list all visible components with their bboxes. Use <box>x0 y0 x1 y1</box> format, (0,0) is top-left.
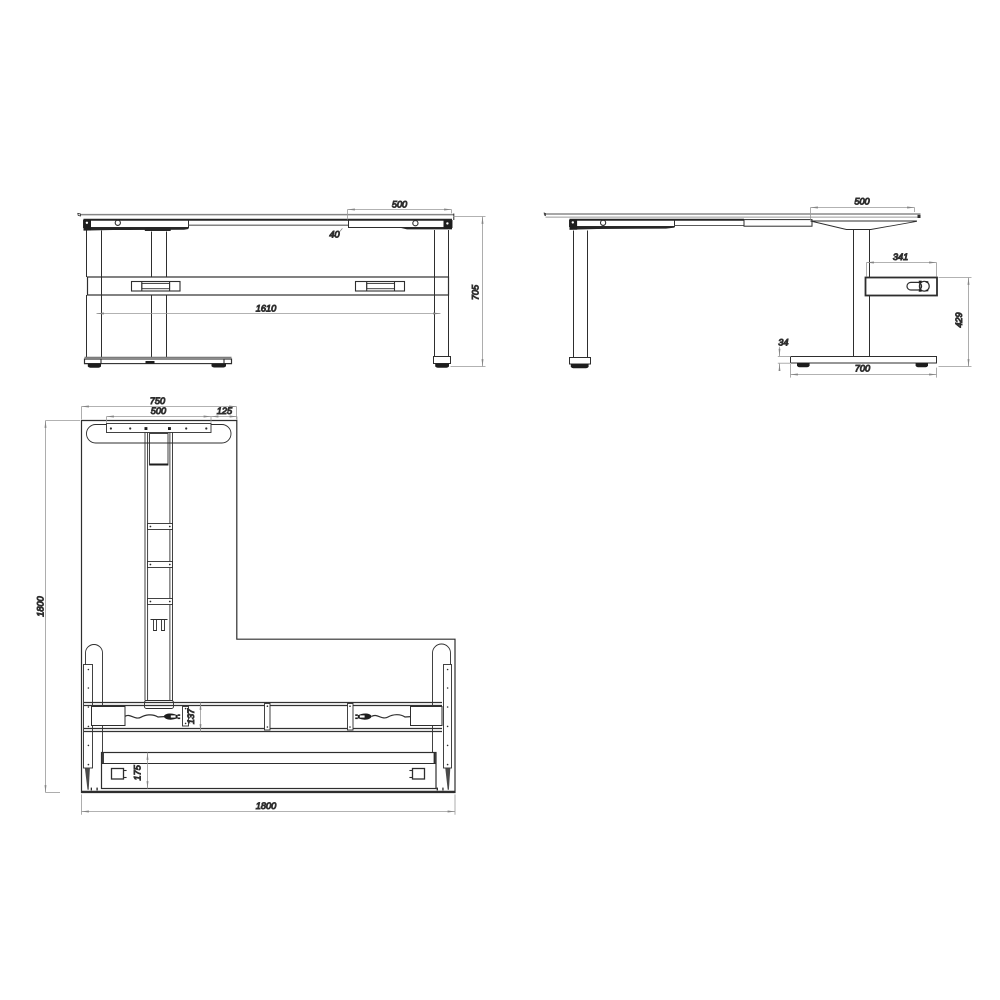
svg-text:500: 500 <box>392 199 408 209</box>
svg-text:500: 500 <box>151 406 167 416</box>
svg-text:175: 175 <box>132 764 142 780</box>
svg-text:341: 341 <box>893 252 908 262</box>
svg-text:40: 40 <box>329 230 340 240</box>
svg-text:700: 700 <box>855 364 871 374</box>
svg-text:1610: 1610 <box>256 303 277 313</box>
svg-text:137: 137 <box>186 708 196 724</box>
svg-text:705: 705 <box>470 284 480 300</box>
svg-text:34: 34 <box>778 338 788 348</box>
svg-text:500: 500 <box>854 197 870 207</box>
svg-text:429: 429 <box>954 312 964 327</box>
svg-text:125: 125 <box>217 406 233 416</box>
svg-text:750: 750 <box>150 396 166 406</box>
svg-text:1800: 1800 <box>36 595 46 616</box>
svg-text:1800: 1800 <box>256 801 277 811</box>
